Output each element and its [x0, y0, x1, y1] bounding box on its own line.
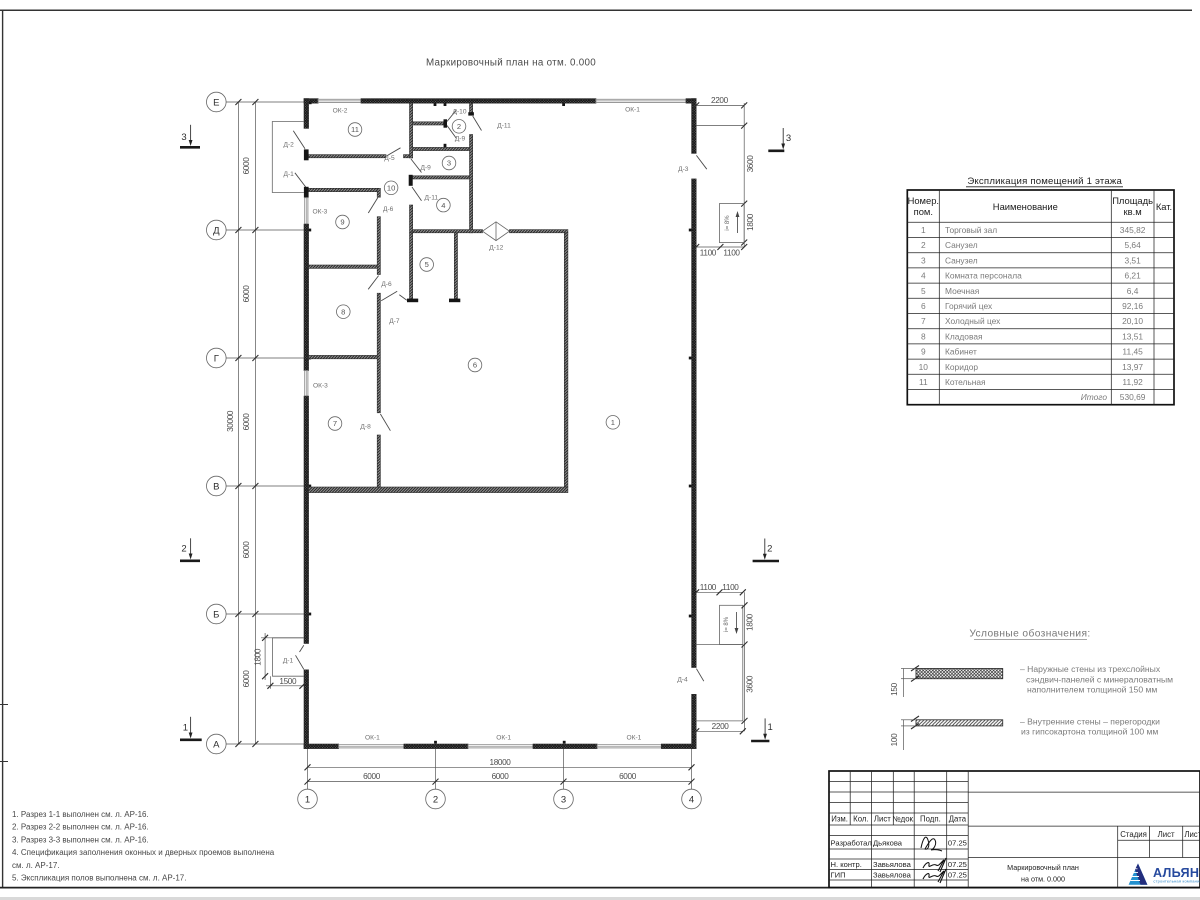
svg-text:Торговый зал: Торговый зал — [945, 225, 997, 235]
svg-text:11: 11 — [919, 377, 928, 387]
svg-text:6000: 6000 — [492, 772, 510, 781]
svg-text:пом.: пом. — [914, 206, 933, 217]
svg-text:ОК-2: ОК-2 — [333, 108, 348, 115]
svg-text:2: 2 — [433, 794, 438, 805]
svg-text:Итого: Итого — [1081, 392, 1108, 402]
svg-text:Д-10: Д-10 — [453, 109, 467, 116]
svg-text:– Наружные стены из трехслойны: – Наружные стены из трехслойных — [1020, 664, 1161, 674]
svg-text:Д-7: Д-7 — [389, 318, 400, 325]
svg-text:i= 8%: i= 8% — [725, 215, 731, 231]
svg-text:6000: 6000 — [242, 413, 251, 431]
svg-text:1: 1 — [305, 794, 310, 805]
svg-text:Кладовая: Кладовая — [945, 331, 983, 341]
svg-text:6000: 6000 — [242, 670, 251, 688]
svg-text:сэндвич-панелей с минераловатн: сэндвич-панелей с минераловатным — [1026, 674, 1173, 684]
svg-text:07.25: 07.25 — [948, 839, 967, 848]
svg-text:1. Разрез 1-1 выполнен см. л.: 1. Разрез 1-1 выполнен см. л. АР-16. — [12, 810, 149, 819]
svg-text:Дьякова: Дьякова — [873, 839, 903, 848]
svg-text:5,64: 5,64 — [1124, 240, 1141, 250]
svg-text:на отм. 0.000: на отм. 0.000 — [1021, 874, 1065, 883]
svg-text:3: 3 — [181, 132, 186, 143]
svg-text:Д-11: Д-11 — [497, 123, 511, 130]
svg-text:Маркировочный план на отм. 0.0: Маркировочный план на отм. 0.000 — [426, 58, 596, 69]
svg-text:кв.м: кв.м — [1124, 206, 1142, 217]
svg-text:6: 6 — [921, 301, 926, 311]
svg-text:см. л. АР-17.: см. л. АР-17. — [12, 861, 60, 870]
svg-text:4: 4 — [689, 794, 694, 805]
svg-text:6000: 6000 — [242, 541, 251, 559]
svg-text:07.25: 07.25 — [948, 860, 967, 869]
svg-text:5. Экспликация полов выполнена: 5. Экспликация полов выполнена см. л. АР… — [12, 874, 186, 883]
svg-text:150: 150 — [890, 682, 899, 695]
svg-text:2: 2 — [767, 544, 772, 555]
svg-text:3600: 3600 — [746, 675, 755, 693]
svg-text:3: 3 — [921, 255, 926, 265]
svg-text:– Внутренние стены – перегород: – Внутренние стены – перегородки — [1020, 717, 1160, 727]
svg-text:Кат.: Кат. — [1156, 201, 1172, 212]
svg-text:100: 100 — [890, 733, 899, 746]
svg-text:ОК-1: ОК-1 — [625, 106, 640, 113]
svg-text:30000: 30000 — [226, 410, 235, 432]
svg-text:4: 4 — [441, 201, 445, 210]
svg-text:Моечная: Моечная — [945, 286, 979, 296]
svg-text:Д-1: Д-1 — [284, 171, 295, 178]
svg-text:Д: Д — [213, 225, 220, 236]
svg-text:Стадия: Стадия — [1120, 830, 1147, 839]
svg-text:Котельная: Котельная — [945, 377, 986, 387]
svg-text:Кабинет: Кабинет — [945, 347, 977, 357]
svg-text:2200: 2200 — [711, 96, 729, 105]
svg-text:Маркировочный план: Маркировочный план — [1007, 863, 1079, 872]
svg-text:ОК-1: ОК-1 — [626, 734, 641, 741]
svg-text:Комната персонала: Комната персонала — [945, 271, 1022, 281]
svg-text:строительная компания: строительная компания — [1153, 879, 1200, 884]
svg-text:1100: 1100 — [700, 583, 717, 592]
svg-text:13,97: 13,97 — [1122, 362, 1143, 372]
svg-text:345,82: 345,82 — [1120, 225, 1146, 235]
svg-text:7: 7 — [333, 419, 337, 428]
svg-text:Лист: Лист — [1158, 830, 1175, 839]
svg-text:Дата: Дата — [949, 815, 967, 824]
svg-text:18000: 18000 — [489, 758, 511, 767]
svg-text:11: 11 — [351, 125, 359, 134]
svg-text:Д-11: Д-11 — [425, 194, 439, 201]
svg-text:Д-6: Д-6 — [383, 206, 394, 213]
svg-text:1: 1 — [611, 418, 615, 427]
svg-text:Санузел: Санузел — [945, 240, 978, 250]
svg-text:Изм.: Изм. — [831, 815, 848, 824]
svg-text:ГИП: ГИП — [831, 870, 846, 879]
svg-text:530,69: 530,69 — [1120, 392, 1146, 402]
svg-text:3: 3 — [561, 794, 566, 805]
svg-text:Д-9: Д-9 — [421, 165, 432, 172]
svg-text:20,10: 20,10 — [1122, 316, 1143, 326]
svg-text:6: 6 — [473, 361, 477, 370]
svg-text:Д-3: Д-3 — [678, 166, 689, 173]
svg-text:3: 3 — [447, 159, 451, 168]
svg-text:11,92: 11,92 — [1122, 377, 1143, 387]
svg-text:3600: 3600 — [746, 155, 755, 173]
svg-text:1: 1 — [768, 722, 773, 733]
svg-text:Д-6: Д-6 — [381, 281, 392, 288]
svg-text:Горячий цех: Горячий цех — [945, 301, 993, 311]
svg-text:Экспликация помещений 1 этажа: Экспликация помещений 1 этажа — [967, 176, 1122, 187]
svg-text:Номер.: Номер. — [908, 195, 939, 206]
svg-text:8: 8 — [921, 331, 926, 341]
svg-text:i= 8%: i= 8% — [724, 616, 730, 632]
svg-text:2: 2 — [181, 543, 186, 554]
svg-text:6,21: 6,21 — [1124, 271, 1141, 281]
svg-text:1800: 1800 — [253, 648, 262, 666]
svg-text:7: 7 — [921, 316, 926, 326]
svg-text:Е: Е — [213, 97, 219, 108]
svg-text:ОК-3: ОК-3 — [313, 382, 328, 389]
svg-text:Коридор: Коридор — [945, 362, 978, 372]
svg-text:5: 5 — [921, 286, 926, 296]
svg-text:Д-4: Д-4 — [677, 677, 688, 684]
svg-text:6000: 6000 — [363, 772, 381, 781]
svg-text:Д-5: Д-5 — [384, 155, 395, 162]
svg-text:№док.: №док. — [892, 815, 915, 824]
svg-text:В: В — [213, 481, 219, 492]
svg-text:9: 9 — [340, 218, 344, 227]
svg-text:Холодный цех: Холодный цех — [945, 316, 1001, 326]
svg-text:Наименование: Наименование — [993, 201, 1058, 212]
svg-text:6000: 6000 — [619, 772, 637, 781]
svg-text:Подп.: Подп. — [920, 815, 941, 824]
svg-text:5: 5 — [425, 260, 429, 269]
svg-text:Б: Б — [213, 609, 219, 620]
svg-text:1800: 1800 — [746, 213, 755, 231]
svg-text:Г: Г — [214, 353, 219, 364]
svg-text:8: 8 — [341, 307, 345, 316]
svg-text:11,45: 11,45 — [1122, 347, 1143, 357]
svg-text:9: 9 — [921, 347, 926, 357]
svg-text:07.25: 07.25 — [948, 870, 967, 879]
svg-text:Завьялова: Завьялова — [873, 870, 912, 879]
svg-text:Разработал: Разработал — [831, 839, 872, 848]
svg-text:2200: 2200 — [712, 722, 730, 731]
svg-text:А: А — [213, 739, 220, 750]
svg-text:Кол.: Кол. — [853, 815, 868, 824]
svg-text:ОК-1: ОК-1 — [365, 734, 380, 741]
svg-text:Листов: Листов — [1184, 830, 1200, 839]
svg-text:6000: 6000 — [242, 157, 251, 175]
svg-text:Площадь: Площадь — [1112, 195, 1153, 206]
svg-text:1100: 1100 — [722, 583, 739, 592]
svg-text:10: 10 — [387, 184, 395, 193]
svg-text:3: 3 — [786, 133, 791, 144]
svg-text:Завьялова: Завьялова — [873, 860, 912, 869]
svg-text:92,16: 92,16 — [1122, 301, 1143, 311]
svg-text:ОК-3: ОК-3 — [313, 208, 328, 215]
svg-text:Условные обозначения:: Условные обозначения: — [969, 627, 1090, 639]
svg-text:1500: 1500 — [279, 677, 297, 686]
svg-text:из гипсокартона толщиной 100 м: из гипсокартона толщиной 100 мм — [1021, 726, 1158, 736]
svg-text:ОК-1: ОК-1 — [496, 734, 511, 741]
svg-text:Д-8: Д-8 — [360, 424, 371, 431]
svg-text:4: 4 — [921, 271, 926, 281]
svg-text:наполнителем толщиной 150 мм: наполнителем толщиной 150 мм — [1027, 684, 1157, 694]
svg-text:10: 10 — [919, 362, 929, 372]
svg-text:Лист: Лист — [874, 815, 891, 824]
svg-text:3,51: 3,51 — [1124, 255, 1141, 265]
svg-text:Д-12: Д-12 — [489, 245, 503, 252]
svg-text:13,51: 13,51 — [1122, 331, 1143, 341]
svg-text:Н. контр.: Н. контр. — [831, 860, 862, 869]
svg-text:1: 1 — [921, 225, 926, 235]
svg-text:Д-1: Д-1 — [283, 657, 294, 664]
svg-text:6,4: 6,4 — [1127, 286, 1139, 296]
svg-text:3. Разрез 3-3 выполнен см. л.: 3. Разрез 3-3 выполнен см. л. АР-16. — [12, 835, 149, 844]
svg-text:Д-2: Д-2 — [284, 141, 295, 148]
svg-text:6000: 6000 — [242, 285, 251, 303]
svg-text:4. Спецификация заполнения око: 4. Спецификация заполнения оконных и две… — [12, 848, 275, 857]
svg-text:1100: 1100 — [723, 248, 740, 257]
svg-text:2: 2 — [457, 122, 461, 131]
svg-text:1100: 1100 — [700, 248, 717, 257]
svg-text:2. Разрез 2-2 выполнен см. л.: 2. Разрез 2-2 выполнен см. л. АР-16. — [12, 823, 149, 832]
svg-text:Санузел: Санузел — [945, 255, 978, 265]
svg-text:Д-9: Д-9 — [455, 135, 466, 142]
svg-text:1800: 1800 — [746, 613, 755, 631]
svg-text:1: 1 — [183, 722, 188, 733]
svg-text:2: 2 — [921, 240, 926, 250]
